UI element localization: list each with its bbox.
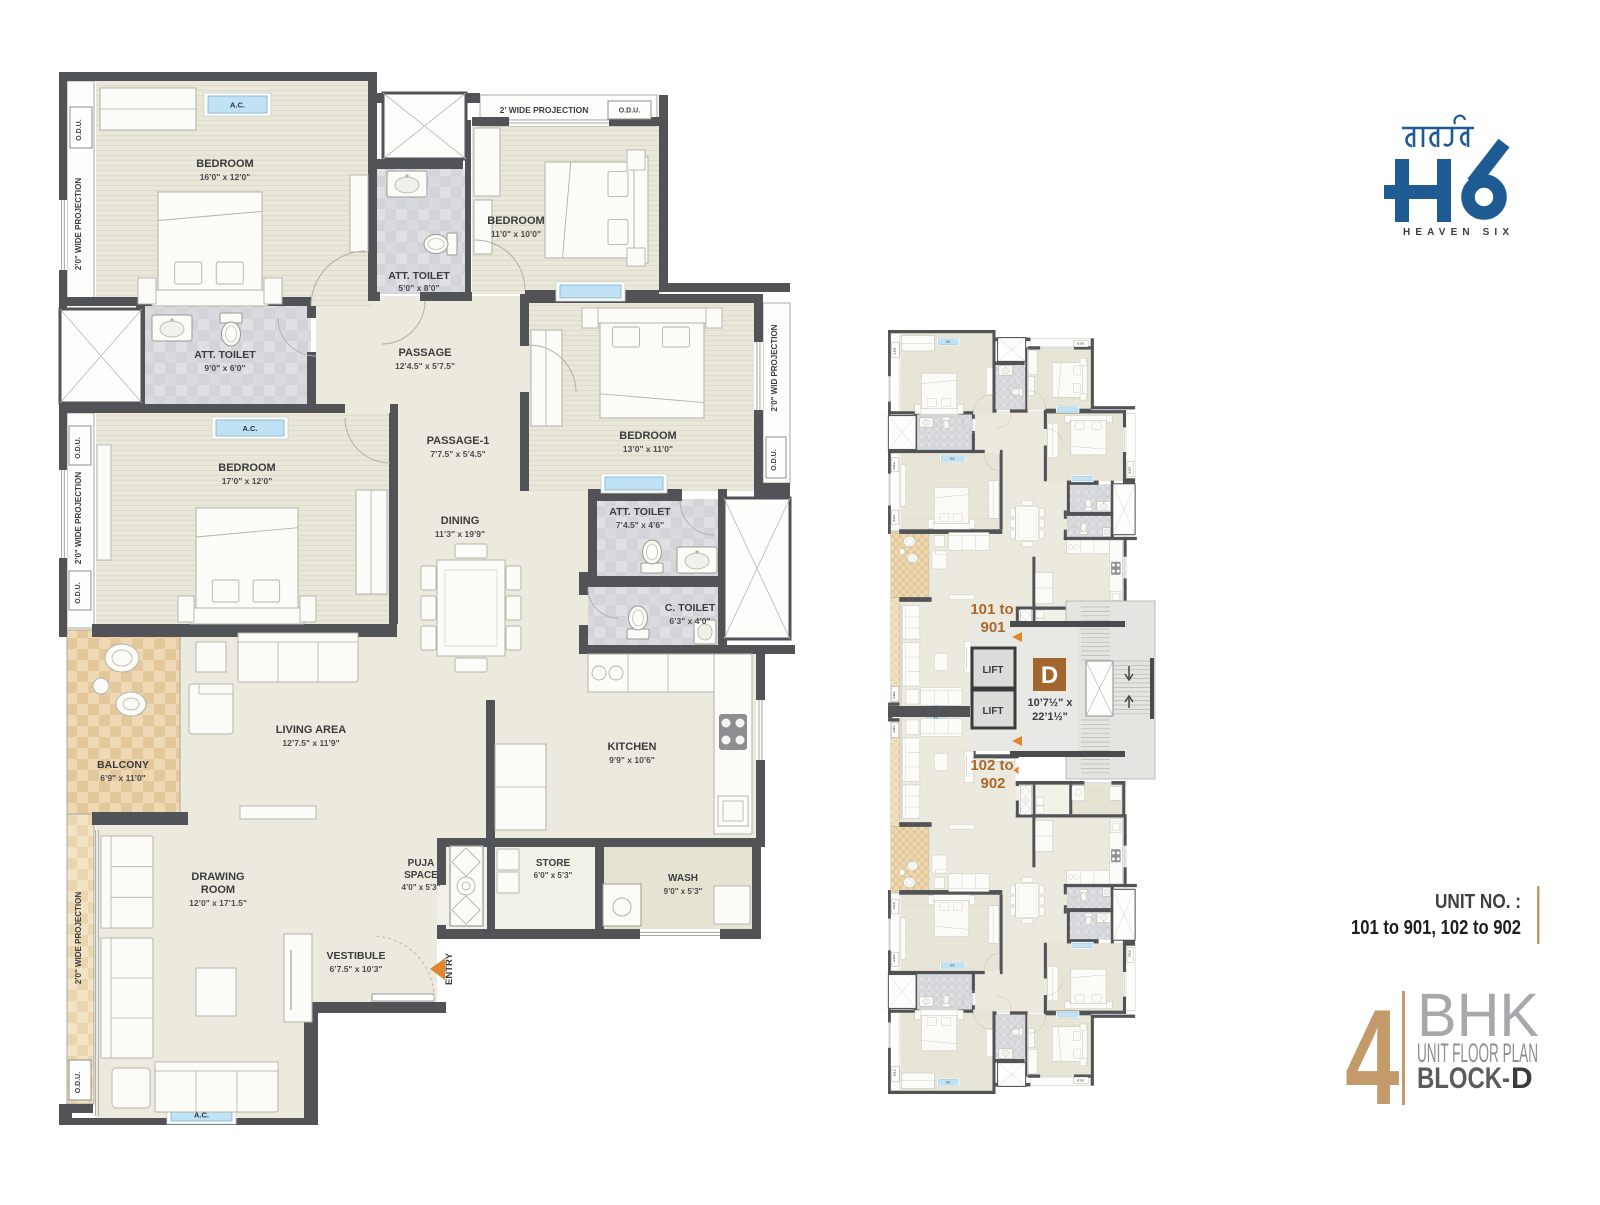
svg-text:STORE: STORE — [536, 858, 571, 869]
svg-text:2’ WIDE PROJECTION: 2’ WIDE PROJECTION — [500, 105, 589, 115]
svg-text:ATT. TOILET: ATT. TOILET — [609, 506, 671, 518]
svg-text:22’1½": 22’1½" — [1032, 711, 1068, 723]
svg-text:C. TOILET: C. TOILET — [665, 602, 716, 614]
svg-text:O.D.U.: O.D.U. — [76, 119, 83, 140]
svg-text:BLOCK-: BLOCK- — [1417, 1062, 1510, 1095]
svg-text:ROOM: ROOM — [201, 884, 235, 896]
svg-text:7’7.5" x 5’4.5": 7’7.5" x 5’4.5" — [430, 449, 485, 459]
svg-text:102 to: 102 to — [970, 757, 1013, 774]
svg-text:LIFT: LIFT — [982, 706, 1003, 717]
svg-text:11’0" x 10’0": 11’0" x 10’0" — [491, 229, 541, 239]
svg-text:O.D.U.: O.D.U. — [619, 108, 640, 115]
svg-text:101 to 901, 102 to 902: 101 to 901, 102 to 902 — [1351, 917, 1521, 939]
svg-text:13’0" x 11’0": 13’0" x 11’0" — [623, 444, 673, 454]
svg-text:9’0" x 5’3": 9’0" x 5’3" — [664, 887, 703, 896]
svg-text:6’3" x 4’0": 6’3" x 4’0" — [669, 616, 710, 626]
svg-text:6’0" x 5’3": 6’0" x 5’3" — [534, 871, 573, 880]
svg-text:2’0" WIDE PROJECTION: 2’0" WIDE PROJECTION — [74, 892, 83, 984]
svg-text:2’0" WID PROJECTION: 2’0" WID PROJECTION — [770, 324, 779, 411]
svg-text:4: 4 — [1345, 982, 1400, 1133]
svg-text:WASH: WASH — [668, 873, 698, 884]
svg-text:ENTRY: ENTRY — [444, 952, 455, 985]
svg-text:O.D.U.: O.D.U. — [75, 582, 82, 603]
svg-text:SPACE: SPACE — [404, 870, 438, 881]
svg-text:9’0" x 6’0": 9’0" x 6’0" — [204, 363, 245, 373]
svg-text:ATT. TOILET: ATT. TOILET — [194, 349, 256, 361]
svg-text:17’0" x 12’0": 17’0" x 12’0" — [222, 476, 273, 486]
svg-text:6’7.5" x 10’3": 6’7.5" x 10’3" — [330, 964, 383, 974]
svg-text:902: 902 — [980, 775, 1005, 792]
svg-text:KITCHEN: KITCHEN — [608, 741, 657, 753]
svg-text:5’0" x 8’0": 5’0" x 8’0" — [398, 283, 439, 293]
svg-text:BEDROOM: BEDROOM — [619, 430, 676, 442]
svg-text:12’7.5" x 11’9": 12’7.5" x 11’9" — [282, 738, 339, 748]
svg-text:A.C.: A.C. — [243, 424, 258, 433]
svg-text:12’4.5" x 5’7.5": 12’4.5" x 5’7.5" — [395, 361, 455, 371]
svg-text:PASSAGE-1: PASSAGE-1 — [427, 435, 490, 447]
svg-text:2’0" WIDE PROJECTION: 2’0" WIDE PROJECTION — [74, 178, 83, 270]
svg-text:DINING: DINING — [441, 515, 480, 527]
svg-text:PUJA: PUJA — [408, 858, 435, 869]
svg-text:101 to: 101 to — [970, 601, 1013, 618]
svg-text:HEAVEN SIX: HEAVEN SIX — [1403, 227, 1512, 238]
svg-text:O.D.U.: O.D.U. — [75, 1072, 82, 1093]
svg-text:LIVING AREA: LIVING AREA — [276, 724, 347, 736]
svg-text:O.D.U.: O.D.U. — [75, 437, 82, 458]
svg-text:O.D.U.: O.D.U. — [771, 449, 778, 470]
svg-text:UNIT NO. :: UNIT NO. : — [1435, 891, 1521, 913]
svg-text:BEDROOM: BEDROOM — [218, 462, 275, 474]
svg-text:11’3" x 19’9": 11’3" x 19’9" — [435, 529, 485, 539]
svg-text:10’7½" x: 10’7½" x — [1028, 697, 1074, 709]
svg-text:A.C.: A.C. — [230, 100, 245, 109]
svg-text:ATT. TOILET: ATT. TOILET — [388, 270, 450, 282]
svg-text:7’4.5" x 4’6": 7’4.5" x 4’6" — [616, 520, 664, 530]
svg-text:6’9" x 11’0": 6’9" x 11’0" — [100, 773, 145, 783]
svg-text:D: D — [1511, 1062, 1533, 1095]
svg-text:BEDROOM: BEDROOM — [487, 215, 544, 227]
svg-text:D: D — [1041, 662, 1058, 689]
svg-text:BALCONY: BALCONY — [97, 759, 149, 771]
svg-text:4’0" x 5’3": 4’0" x 5’3" — [402, 883, 441, 892]
svg-text:12’0" x 17’1.5": 12’0" x 17’1.5" — [189, 898, 247, 908]
svg-text:901: 901 — [980, 619, 1005, 636]
svg-text:DRAWING: DRAWING — [191, 871, 244, 883]
svg-text:16’0" x 12’0": 16’0" x 12’0" — [200, 172, 251, 182]
svg-text:9’9" x 10’6": 9’9" x 10’6" — [609, 755, 655, 765]
svg-text:PASSAGE: PASSAGE — [399, 347, 452, 359]
svg-text:VESTIBULE: VESTIBULE — [327, 950, 386, 962]
svg-text:2’0" WIDE PROJECTION: 2’0" WIDE PROJECTION — [74, 472, 83, 564]
svg-text:BEDROOM: BEDROOM — [196, 158, 253, 170]
svg-text:LIFT: LIFT — [982, 665, 1003, 676]
